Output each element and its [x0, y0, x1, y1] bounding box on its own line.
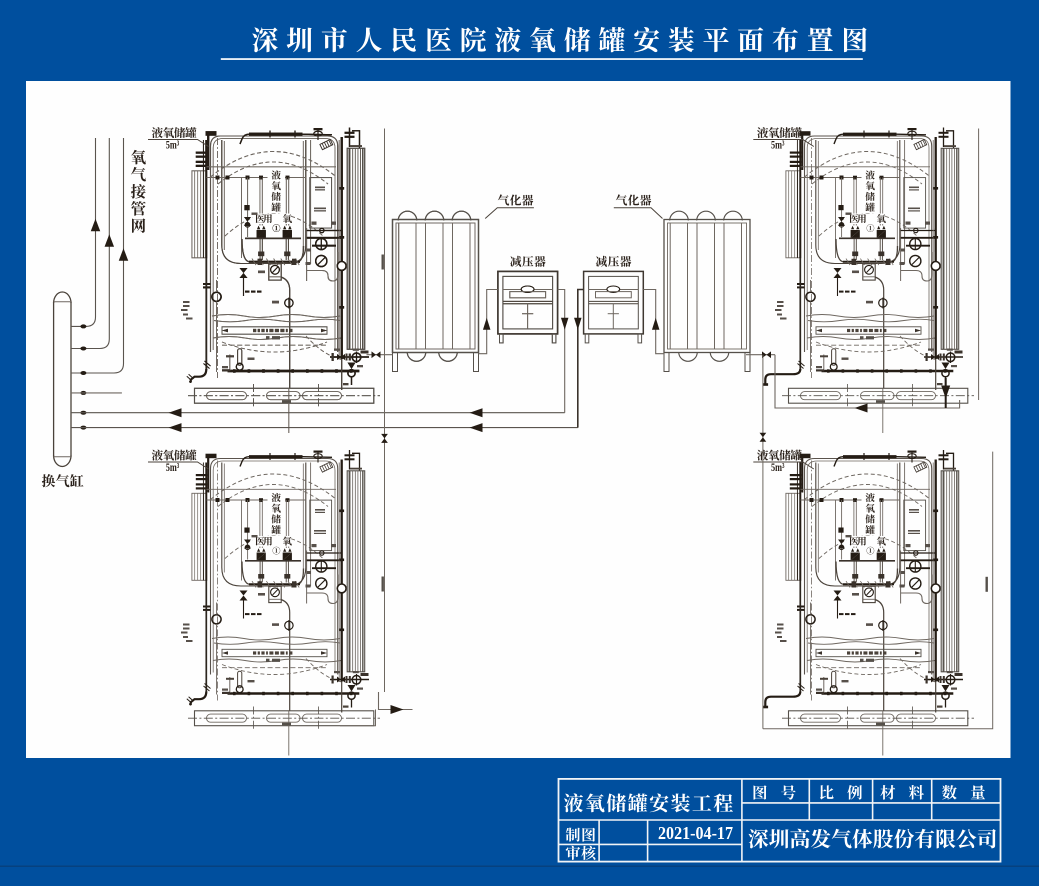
svg-text:5m³: 5m³: [771, 138, 785, 152]
svg-text:2021-04-17: 2021-04-17: [658, 823, 733, 843]
svg-text:5m³: 5m³: [166, 460, 180, 474]
svg-text:5m³: 5m³: [771, 460, 785, 474]
svg-text:5m³: 5m³: [166, 138, 180, 152]
